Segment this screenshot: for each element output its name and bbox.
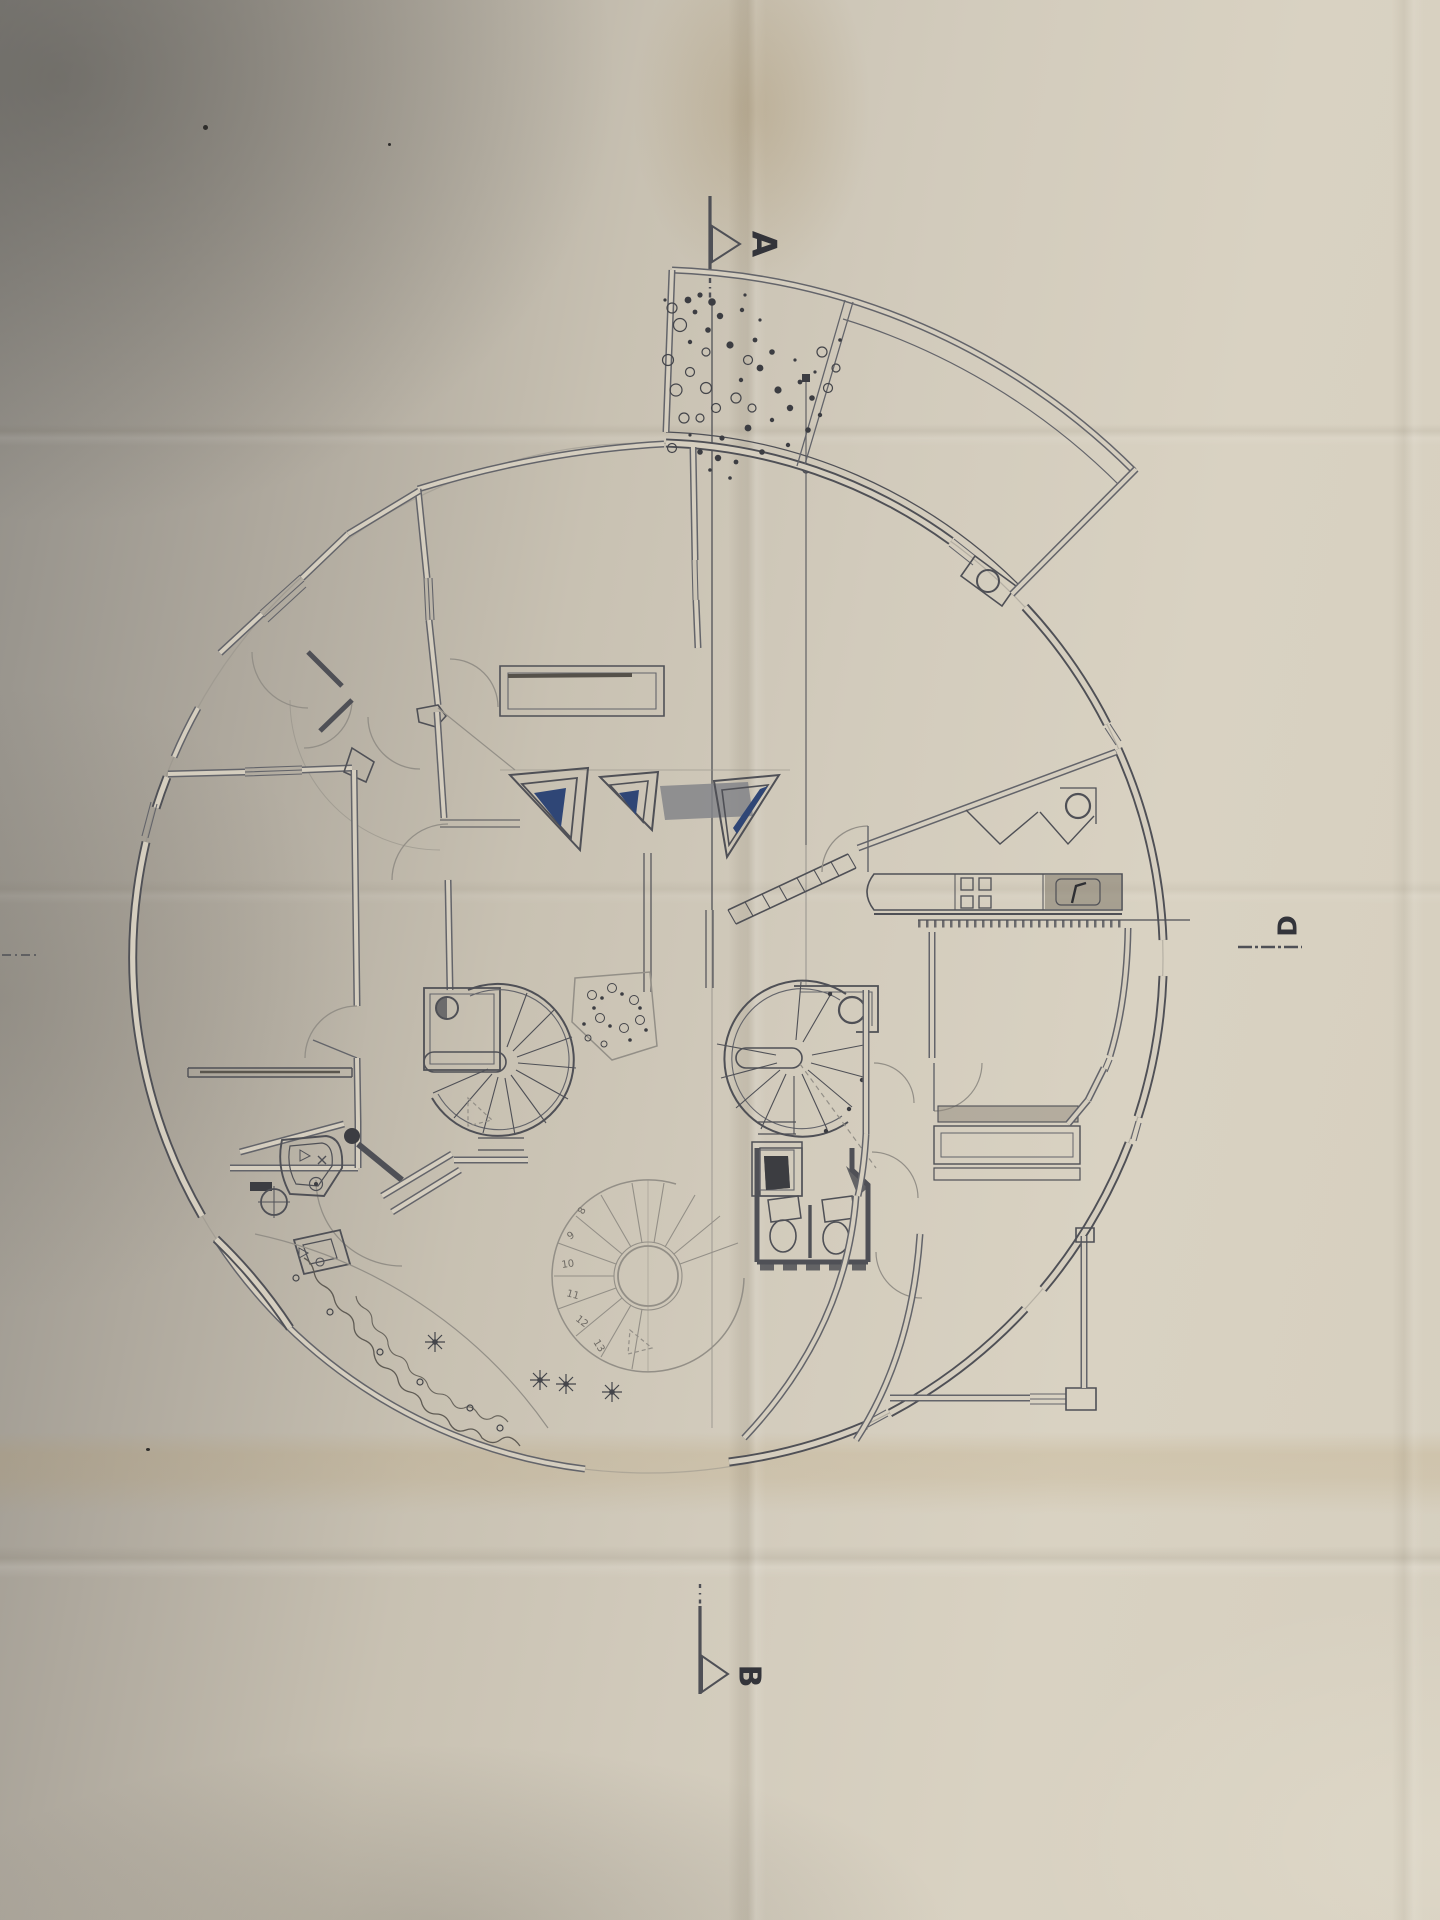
right-bedroom bbox=[932, 928, 1128, 1180]
skylight-triangle-1 bbox=[510, 768, 588, 850]
door-swing-arc bbox=[305, 1006, 357, 1058]
svg-text:12: 12 bbox=[573, 1314, 590, 1331]
door-swing-arc bbox=[934, 1063, 982, 1111]
floor-plan-drawing: A B D bbox=[0, 0, 1440, 1920]
survey-point-dot bbox=[802, 374, 810, 382]
spiral-staircase-left bbox=[424, 984, 576, 1160]
wall-corner-block bbox=[417, 705, 446, 727]
door-leaf bbox=[313, 1040, 357, 1058]
section-arrow-a-icon bbox=[712, 226, 740, 262]
column bbox=[344, 1128, 360, 1144]
column-circle bbox=[839, 997, 865, 1023]
svg-text:10: 10 bbox=[561, 1258, 575, 1271]
door-swing-arc bbox=[450, 659, 498, 707]
door-swing-arc bbox=[874, 1063, 914, 1103]
spiral-staircase-middle bbox=[717, 981, 914, 1196]
wardrobe-shelves bbox=[934, 1106, 1080, 1180]
fan-terrace bbox=[663, 270, 1137, 594]
built-in-shelf bbox=[188, 1068, 352, 1077]
left-bedroom bbox=[168, 748, 374, 1168]
stove-burners bbox=[961, 878, 991, 908]
pantry-nook bbox=[966, 810, 1038, 844]
column-circle bbox=[436, 997, 458, 1019]
skylight-triangle-2 bbox=[600, 772, 658, 830]
door-swing-arc bbox=[392, 824, 448, 880]
step-numbers: 8 9 10 11 12 13 bbox=[561, 1205, 607, 1354]
kitchen-counter bbox=[867, 874, 1122, 914]
exit-steps bbox=[478, 1138, 524, 1150]
bathroom-lower-left bbox=[216, 1124, 460, 1328]
built-in-counter bbox=[500, 666, 664, 716]
photographed-floor-plan: A B D bbox=[0, 0, 1440, 1920]
section-marker-b-label: B bbox=[732, 1665, 767, 1688]
section-marker-d-label: D bbox=[1274, 915, 1304, 937]
northwest-wing bbox=[220, 491, 440, 850]
toilet bbox=[768, 1196, 801, 1252]
section-arrow-b-icon bbox=[702, 1656, 728, 1692]
sink-unit bbox=[294, 1230, 350, 1274]
pantry-nook bbox=[1040, 812, 1094, 844]
glass-panel bbox=[534, 788, 566, 827]
svg-text:9: 9 bbox=[565, 1230, 577, 1243]
door-swing-arc bbox=[252, 652, 308, 708]
spiral-staircase-lower: 8 9 10 11 12 13 bbox=[552, 1180, 744, 1372]
column-with-circle bbox=[1060, 788, 1096, 824]
section-marker-a-label: A bbox=[744, 231, 784, 258]
svg-text:11: 11 bbox=[565, 1288, 580, 1302]
section-marker-d: D bbox=[2, 915, 1304, 955]
envelope-windows bbox=[142, 539, 1141, 1427]
door-leaf bbox=[308, 652, 342, 686]
door-leaf bbox=[320, 700, 352, 731]
envelope-corner-column bbox=[961, 556, 1016, 606]
central-hall bbox=[392, 708, 856, 992]
straight-stair-run bbox=[728, 854, 856, 924]
glass-panel bbox=[619, 790, 639, 815]
door-swing-arc bbox=[872, 1152, 918, 1198]
stair-treads bbox=[717, 982, 869, 1134]
terrace-hatched-edge bbox=[918, 920, 1190, 924]
kitchen bbox=[822, 752, 1190, 924]
door-swing-arc bbox=[368, 717, 420, 769]
under-stair-closet bbox=[752, 1142, 802, 1196]
svg-text:8: 8 bbox=[576, 1205, 589, 1216]
section-marker-b: B bbox=[700, 1584, 767, 1694]
wall-corner-block bbox=[1066, 1388, 1096, 1410]
section-line-a-b bbox=[712, 300, 810, 1428]
